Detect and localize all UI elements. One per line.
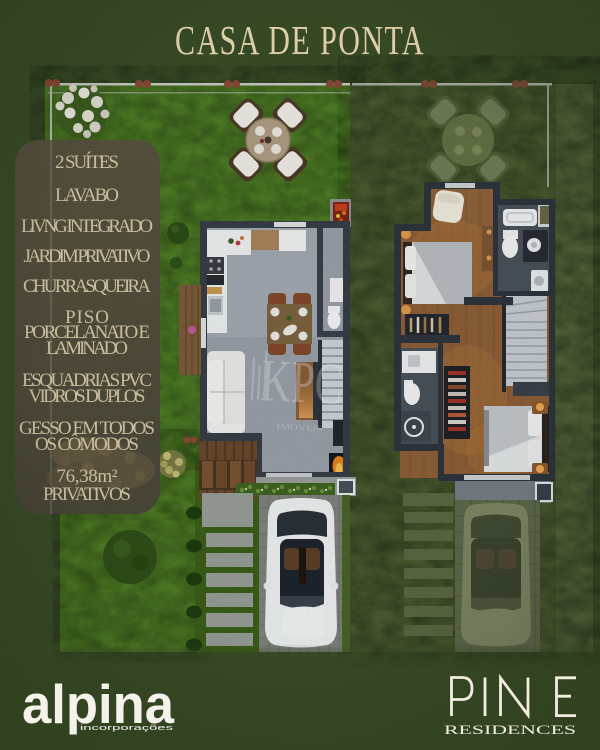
svg-text:RESIDENCES: RESIDENCES bbox=[444, 723, 576, 737]
svg-text:incorporações: incorporações bbox=[80, 723, 173, 732]
